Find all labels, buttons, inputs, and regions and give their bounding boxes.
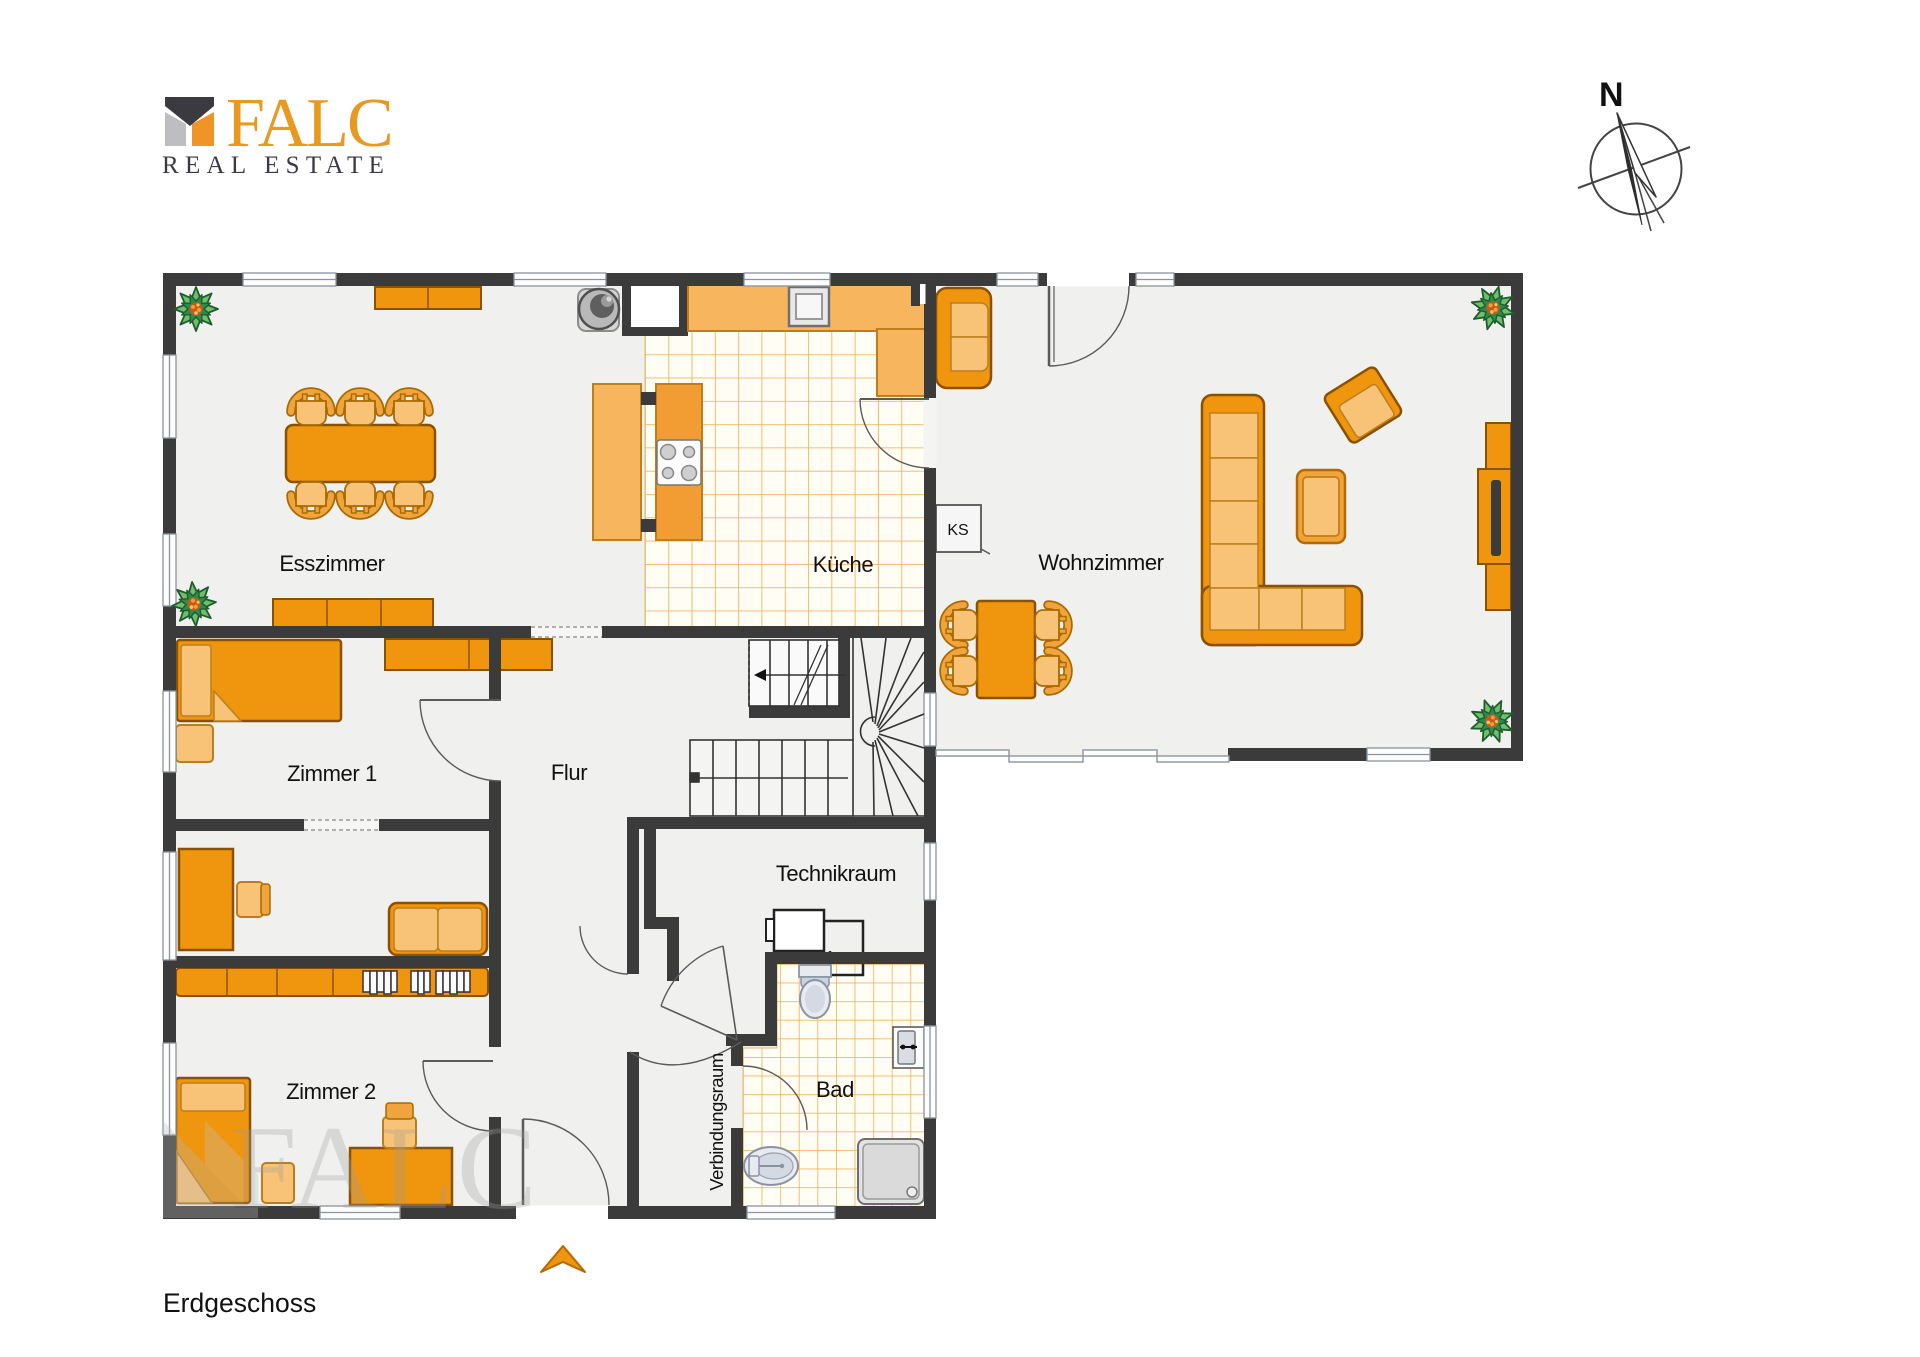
svg-text:Zimmer 1: Zimmer 1 (287, 761, 377, 786)
svg-text:Flur: Flur (551, 760, 587, 785)
svg-text:Erdgeschoss: Erdgeschoss (163, 1288, 316, 1318)
svg-text:Küche: Küche (813, 552, 874, 577)
svg-text:Bad: Bad (816, 1077, 854, 1102)
svg-text:Esszimmer: Esszimmer (279, 551, 384, 576)
svg-text:FALC: FALC (230, 1101, 540, 1234)
svg-text:N: N (1599, 76, 1624, 114)
svg-text:KS: KS (947, 522, 968, 539)
svg-text:Technikraum: Technikraum (776, 861, 896, 886)
svg-text:FALC: FALC (226, 85, 392, 162)
svg-text:Verbindungsraum: Verbindungsraum (706, 1053, 727, 1191)
svg-text:Wohnzimmer: Wohnzimmer (1038, 550, 1163, 575)
svg-text:REAL ESTATE: REAL ESTATE (162, 152, 390, 179)
